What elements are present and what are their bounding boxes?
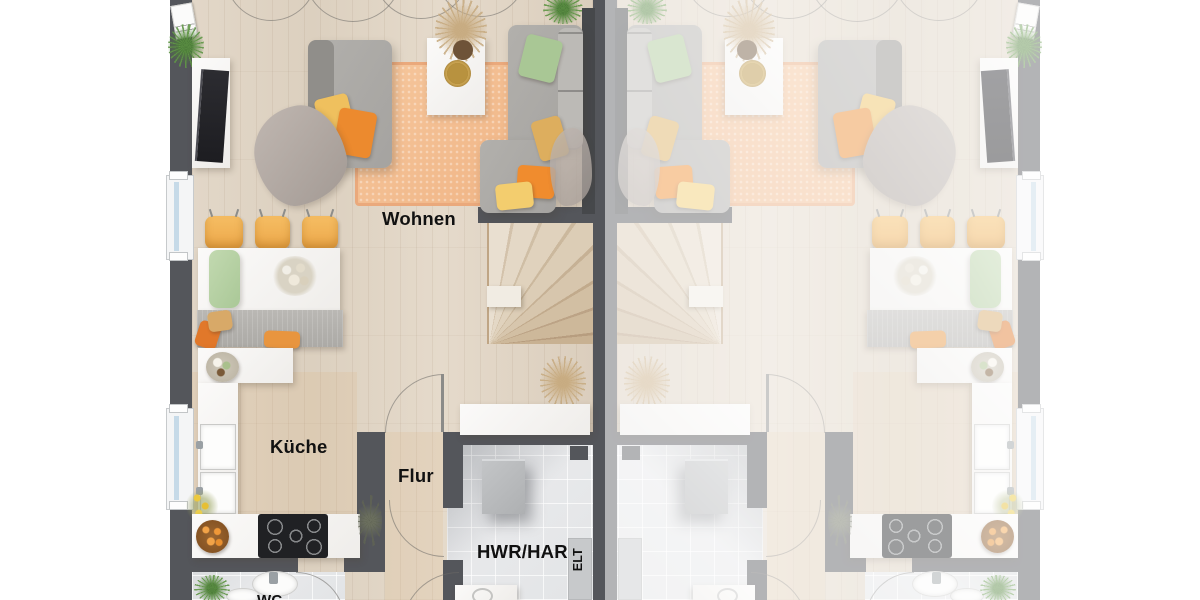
hall-door-leaf	[766, 374, 769, 432]
window-living	[166, 175, 194, 260]
window-glass	[174, 416, 179, 500]
orange-bowl	[981, 520, 1014, 553]
window-cap	[1022, 252, 1041, 261]
table-centerpiece	[272, 256, 318, 296]
fruit-bowl	[206, 352, 239, 382]
wc-plant	[194, 575, 230, 600]
table-centerpiece	[892, 256, 938, 296]
unit-structure	[605, 0, 1050, 600]
wc-wall-stub	[344, 556, 357, 572]
window-cap	[1022, 501, 1041, 510]
pillow-tan	[207, 309, 234, 332]
winder-staircase	[617, 223, 723, 344]
washer	[482, 459, 525, 514]
pillow-tan	[977, 309, 1004, 332]
dried-plant	[624, 356, 670, 408]
kitchen-sink	[974, 424, 1010, 470]
window-cap	[1022, 171, 1041, 180]
hall-wardrobe	[460, 404, 590, 435]
decor-tray	[444, 60, 471, 87]
hall-dried-sprig	[358, 495, 382, 547]
faucet	[1007, 441, 1014, 449]
utility-wall-left	[443, 432, 463, 508]
pillow-orange	[910, 330, 947, 348]
dining-chair	[255, 216, 290, 249]
label-electrical: ELT	[571, 548, 585, 571]
window-cap	[169, 252, 188, 261]
label-living: Wohnen	[382, 208, 456, 230]
throw-blanket	[550, 128, 592, 206]
wc-plant	[980, 575, 1016, 600]
window-glass	[1031, 182, 1036, 251]
dining-bench-green	[970, 250, 1001, 308]
window-glass	[174, 182, 179, 251]
window-cap	[169, 404, 188, 413]
pillow-pale-yellow	[676, 181, 716, 211]
wc-wall-stub	[853, 556, 866, 572]
window-cap	[169, 171, 188, 180]
toilet	[226, 588, 260, 600]
wc-wall	[912, 556, 1018, 572]
throw-blanket	[618, 128, 660, 206]
kitchen-sink	[200, 424, 236, 470]
dining-chair	[302, 216, 338, 249]
pillow-pale-yellow	[495, 181, 535, 211]
unit-right	[605, 0, 1050, 600]
hall-door-leaf	[441, 374, 444, 432]
window-living	[1016, 175, 1044, 260]
duct-pillar	[570, 446, 588, 460]
duct-pillar	[622, 446, 640, 460]
floor-plan: Wohnen Küche Flur HWR/HAR ELT WC	[0, 0, 1200, 600]
hall-dried-sprig	[828, 495, 852, 547]
elt-closet	[618, 538, 642, 600]
dining-chair	[967, 216, 1005, 249]
washer	[685, 459, 728, 514]
label-kitchen: Küche	[270, 436, 328, 458]
wc-faucet	[932, 572, 941, 584]
cooktop	[882, 514, 952, 558]
decor-tray	[739, 60, 766, 87]
wc-wall	[192, 556, 298, 572]
winder-staircase	[487, 223, 593, 344]
window-glass	[1031, 416, 1036, 500]
hall-wardrobe	[620, 404, 750, 435]
dried-plant	[540, 356, 586, 408]
pillow-orange	[264, 330, 301, 348]
dining-chair	[205, 216, 243, 249]
wc-faucet	[269, 572, 278, 584]
label-hallway: Flur	[398, 465, 434, 487]
unit-structure	[160, 0, 605, 600]
plant-vase	[737, 40, 757, 60]
label-utility: HWR/HAR	[477, 541, 568, 563]
washer-drum	[717, 588, 738, 600]
dining-chair	[920, 216, 955, 249]
fruit-bowl	[971, 352, 1004, 382]
faucet	[196, 441, 203, 449]
unit-left: Wohnen Küche Flur HWR/HAR ELT WC	[160, 0, 605, 600]
window-cap	[1022, 404, 1041, 413]
orange-bowl	[196, 520, 229, 553]
utility-wall-left	[747, 432, 767, 508]
plant-vase	[453, 40, 473, 60]
stair-landing	[487, 286, 521, 307]
cooktop	[258, 514, 328, 558]
washer-drum	[472, 588, 493, 600]
toilet	[950, 588, 984, 600]
stair-landing	[689, 286, 723, 307]
dining-chair	[872, 216, 908, 249]
label-toilet: WC	[257, 592, 282, 600]
dining-bench-green	[209, 250, 240, 308]
